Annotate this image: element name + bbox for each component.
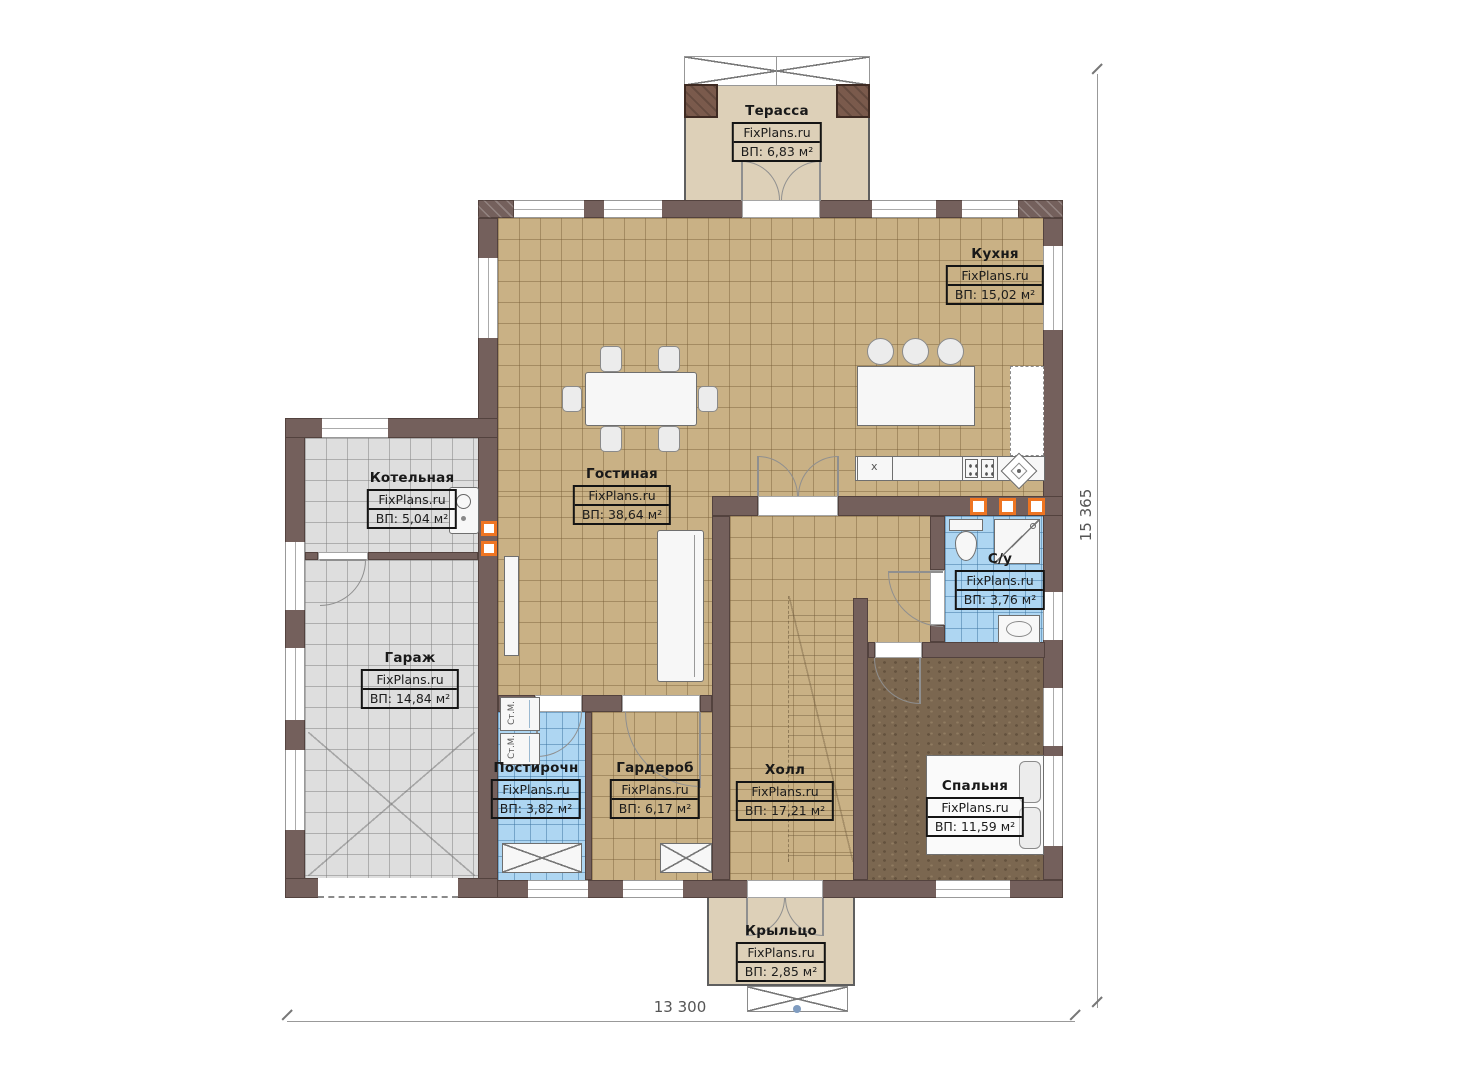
window [1043, 688, 1063, 746]
room-name: Гараж [361, 650, 459, 666]
washer-label: Ст.М. [507, 701, 517, 725]
dining-chair [600, 346, 622, 372]
window [1043, 756, 1063, 846]
utility-marker [1028, 498, 1045, 515]
room-label-living-room: Гостиная FixPlans.ru ВП: 38,64 м² [573, 466, 671, 525]
wardrobe-door-opening [622, 695, 700, 712]
dining-chair [658, 346, 680, 372]
window [604, 200, 662, 218]
laundry-door-opening [535, 695, 582, 712]
room-area: ВП: 15,02 м² [948, 286, 1042, 303]
stove [962, 456, 998, 481]
dining-chair [562, 386, 582, 412]
dimension-line-bottom [287, 1021, 1075, 1022]
room-label-kitchen: Кухня FixPlans.ru ВП: 15,02 м² [946, 246, 1044, 305]
utility-marker [481, 521, 497, 536]
dimension-tick [1091, 63, 1102, 74]
terrace-pergola [684, 56, 870, 86]
room-name: Спальня [926, 778, 1024, 794]
window [623, 880, 683, 898]
dining-table [585, 372, 697, 426]
room-label-hall: Холл FixPlans.ru ВП: 17,21 м² [736, 762, 834, 821]
bar-stool [937, 338, 964, 365]
burner-grid [981, 459, 994, 478]
room-area: ВП: 14,84 м² [363, 690, 457, 707]
wardrobe-cabinet [660, 843, 712, 873]
wall-garage-top [285, 418, 498, 438]
corner-pier-top-left [478, 200, 514, 218]
toilet-tank [949, 519, 983, 531]
laundry-cabinet [502, 843, 582, 873]
room-label-wardrobe: Гардероб FixPlans.ru ВП: 6,17 м² [610, 760, 700, 819]
kitchen-upper-cabinet [1010, 366, 1044, 456]
room-label-boiler-room: Котельная FixPlans.ru ВП: 5,04 м² [367, 470, 457, 529]
floor-plan: x Ст.М. Ст.М. Терасса FixPlans.ru ВП: 6,… [0, 0, 1473, 1080]
tv-stand [504, 556, 519, 656]
dimension-line-right [1097, 74, 1098, 1008]
wall-laundry-wardrobe [585, 712, 592, 880]
watermark: FixPlans.ru [948, 267, 1042, 286]
porch-step-marker-dot [793, 1005, 801, 1013]
window [285, 750, 305, 830]
wall-bathroom-left-1 [930, 516, 945, 570]
corner-pier-top-right [1018, 200, 1063, 218]
window [1043, 592, 1063, 640]
room-name: Гардероб [610, 760, 700, 776]
sofa [657, 530, 704, 682]
burner-grid [965, 459, 978, 478]
room-area: ВП: 11,59 м² [928, 818, 1022, 835]
wall-bedroom-top-1 [868, 642, 875, 658]
utility-marker [999, 498, 1016, 515]
window [872, 200, 936, 218]
wall-boiler-garage-1 [305, 552, 318, 560]
watermark: FixPlans.ru [493, 781, 579, 800]
terrace-door-opening [742, 200, 820, 218]
watermark: FixPlans.ru [369, 491, 455, 510]
wall-wardrobe-top-1 [582, 695, 622, 712]
room-area: ВП: 3,82 м² [493, 800, 579, 817]
bedroom-door-opening [875, 642, 922, 658]
dimension-right-value: 15 365 [1077, 475, 1097, 555]
watermark: FixPlans.ru [928, 799, 1022, 818]
window [528, 880, 588, 898]
washbasin [998, 615, 1040, 643]
bar-stool [902, 338, 929, 365]
room-label-laundry: Постирочн FixPlans.ru ВП: 3,82 м² [491, 760, 581, 819]
staircase [788, 596, 853, 862]
dining-chair [658, 426, 680, 452]
terrace-pillar-right [836, 84, 870, 118]
washer-label: Ст.М. [507, 735, 517, 759]
garage-turn-marking [308, 732, 475, 876]
corner-sink [998, 450, 1040, 492]
garage-door-opening [318, 878, 458, 898]
window [936, 880, 1010, 898]
room-area: ВП: 2,85 м² [738, 963, 824, 980]
room-label-terrace: Терасса FixPlans.ru ВП: 6,83 м² [732, 103, 822, 162]
room-area: ВП: 38,64 м² [575, 506, 669, 523]
porch-door-opening [747, 880, 823, 898]
dining-chair [698, 386, 718, 412]
dimension-bottom-value: 13 300 [630, 998, 730, 1016]
room-label-bedroom: Спальня FixPlans.ru ВП: 11,59 м² [926, 778, 1024, 837]
utility-marker [481, 541, 497, 556]
wall-boiler-garage-2 [368, 552, 478, 560]
dimension-tick [281, 1009, 292, 1020]
window [322, 418, 388, 438]
room-name: Терасса [732, 103, 822, 119]
room-name: С/у [955, 551, 1045, 567]
room-name: Гостиная [573, 466, 671, 482]
living-hall-opening [758, 496, 838, 516]
wall-living-hall-1 [712, 496, 758, 516]
watermark: FixPlans.ru [363, 671, 457, 690]
room-name: Котельная [367, 470, 457, 486]
room-name: Холл [736, 762, 834, 778]
kitchen-sink-cabinet: x [857, 456, 893, 481]
watermark: FixPlans.ru [575, 487, 669, 506]
dining-chair [600, 426, 622, 452]
terrace-pillar-left [684, 84, 718, 118]
room-label-bathroom: С/у FixPlans.ru ВП: 3,76 м² [955, 551, 1045, 610]
watermark: FixPlans.ru [738, 783, 832, 802]
watermark: FixPlans.ru [734, 124, 820, 143]
sink-x-mark: x [871, 460, 878, 473]
utility-marker [970, 498, 987, 515]
window [510, 200, 584, 218]
room-name: Крыльцо [736, 923, 826, 939]
window [1043, 246, 1063, 330]
dimension-tick [1069, 1009, 1080, 1020]
wall-hall-left [712, 516, 730, 880]
room-name: Постирочн [491, 760, 581, 776]
room-label-porch: Крыльцо FixPlans.ru ВП: 2,85 м² [736, 923, 826, 982]
watermark: FixPlans.ru [612, 781, 698, 800]
watermark: FixPlans.ru [738, 944, 824, 963]
room-area: ВП: 5,04 м² [369, 510, 455, 527]
window [962, 200, 1018, 218]
watermark: FixPlans.ru [957, 572, 1043, 591]
kitchen-island [857, 366, 975, 426]
room-area: ВП: 17,21 м² [738, 802, 832, 819]
room-area: ВП: 6,17 м² [612, 800, 698, 817]
wall-bedroom-top-2 [922, 642, 1045, 658]
window [285, 542, 305, 610]
wall-hall-bedroom [853, 598, 868, 880]
window [285, 648, 305, 720]
room-area: ВП: 6,83 м² [734, 143, 820, 160]
room-label-garage: Гараж FixPlans.ru ВП: 14,84 м² [361, 650, 459, 709]
room-name: Кухня [946, 246, 1044, 262]
room-area: ВП: 3,76 м² [957, 591, 1043, 608]
window [478, 258, 498, 338]
pergola-center-beam [776, 56, 777, 86]
wall-wardrobe-top-2 [700, 695, 712, 712]
bar-stool [867, 338, 894, 365]
wall-bathroom-left-2 [930, 625, 945, 642]
